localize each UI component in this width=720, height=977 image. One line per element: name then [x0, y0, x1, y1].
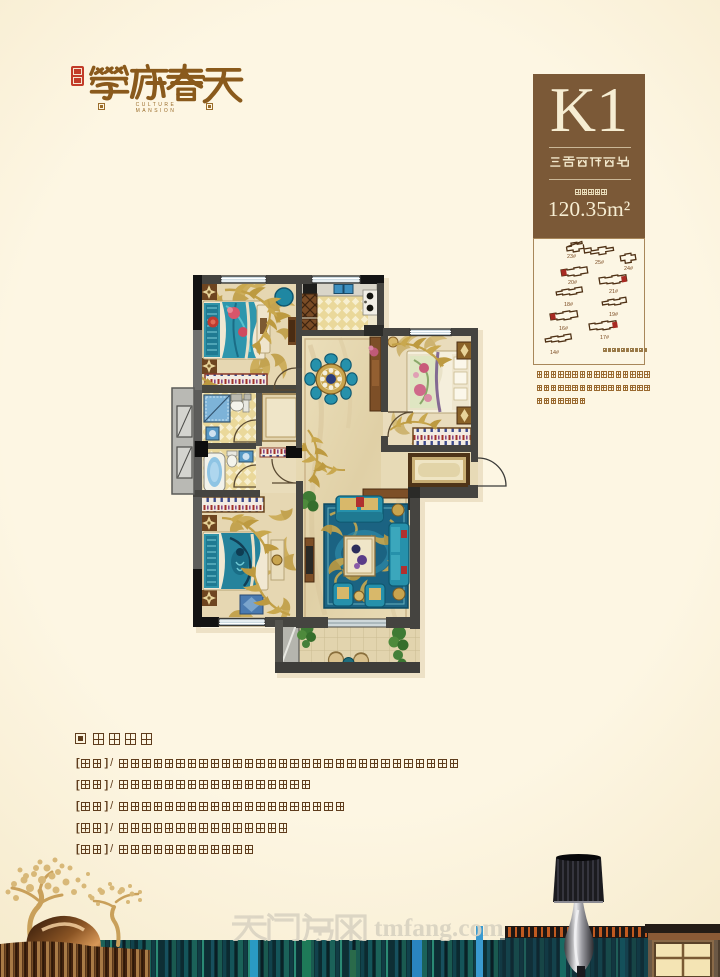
svg-text:tmfang.com: tmfang.com: [374, 913, 504, 941]
